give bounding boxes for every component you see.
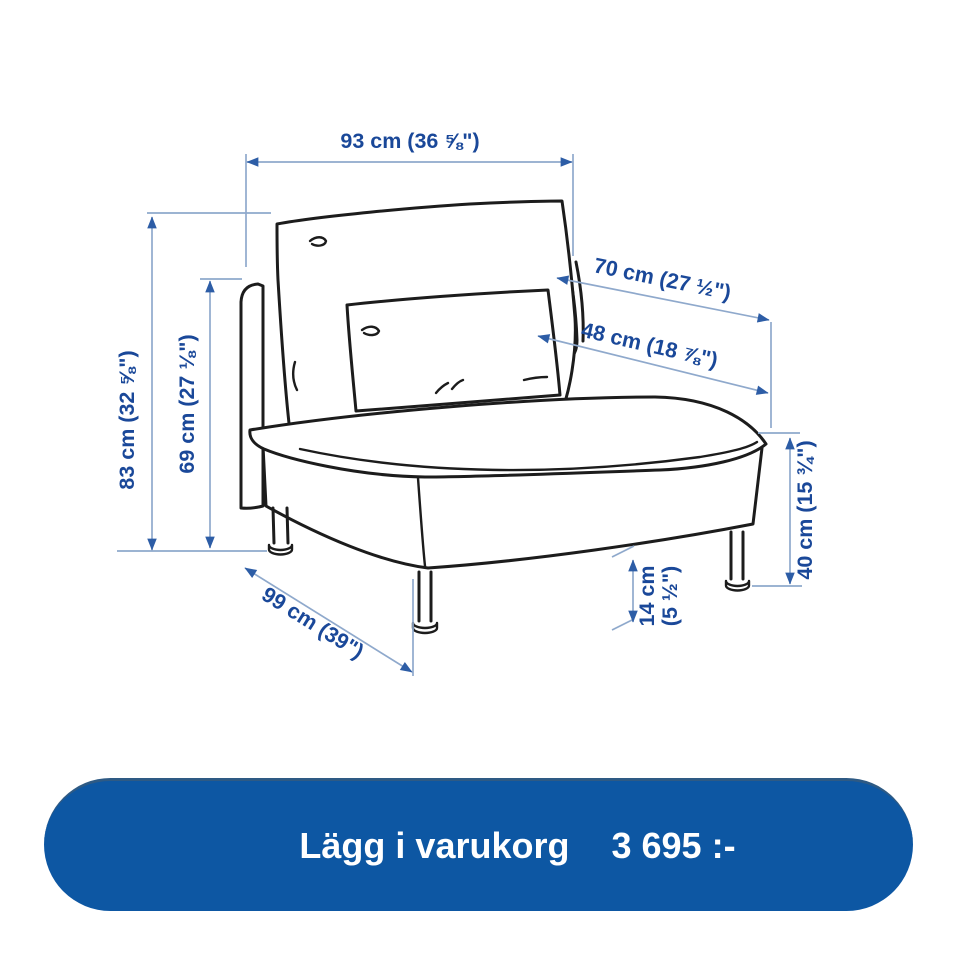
dim-height-backrest: 69 cm (27 ⅛") (175, 281, 210, 548)
dim-height-seat-label: 40 cm (15 ¾") (793, 440, 817, 579)
sofa-leg-right (726, 532, 749, 591)
dim-depth-overall: 99 cm (39") (245, 568, 412, 672)
backrest-frame (241, 284, 263, 508)
dim-height-leg-label-2: (5 ½") (658, 566, 682, 626)
small-pillow (347, 290, 560, 411)
dim-depth-overall-label: 99 cm (39") (257, 582, 368, 663)
add-to-cart-label: Lägg i varukorg (299, 825, 569, 867)
dim-height-seat: 40 cm (15 ¾") (790, 438, 817, 584)
dim-width-overall-label: 93 cm (36 ⅝") (340, 129, 479, 153)
dim-width-overall: 93 cm (36 ⅝") (247, 129, 572, 162)
dim-height-overall: 83 cm (32 ⅝") (115, 217, 152, 550)
add-to-cart-button[interactable]: Lägg i varukorg 3 695 :- (44, 778, 913, 911)
dim-height-overall-label: 83 cm (32 ⅝") (115, 350, 139, 489)
sofa-dimension-diagram: 93 cm (36 ⅝") 83 cm (32 ⅝") 69 cm (27 ⅛"… (0, 0, 953, 760)
dim-height-leg-label-1: 14 cm (635, 566, 659, 627)
product-dimension-page: 93 cm (36 ⅝") 83 cm (32 ⅝") 69 cm (27 ⅛"… (0, 0, 953, 960)
dim-height-backrest-label: 69 cm (27 ⅛") (175, 334, 199, 473)
sofa-illustration (241, 201, 766, 633)
dim-depth-back-cushion-label: 70 cm (27 ½") (592, 253, 733, 305)
dim-depth-back-cushion: 70 cm (27 ½") (557, 253, 769, 320)
sofa-leg-front (413, 572, 437, 633)
price-label: 3 695 :- (611, 825, 735, 867)
add-to-cart-content: Lägg i varukorg 3 695 :- (299, 825, 735, 867)
dim-height-leg: 14 cm (5 ½") (633, 560, 682, 626)
